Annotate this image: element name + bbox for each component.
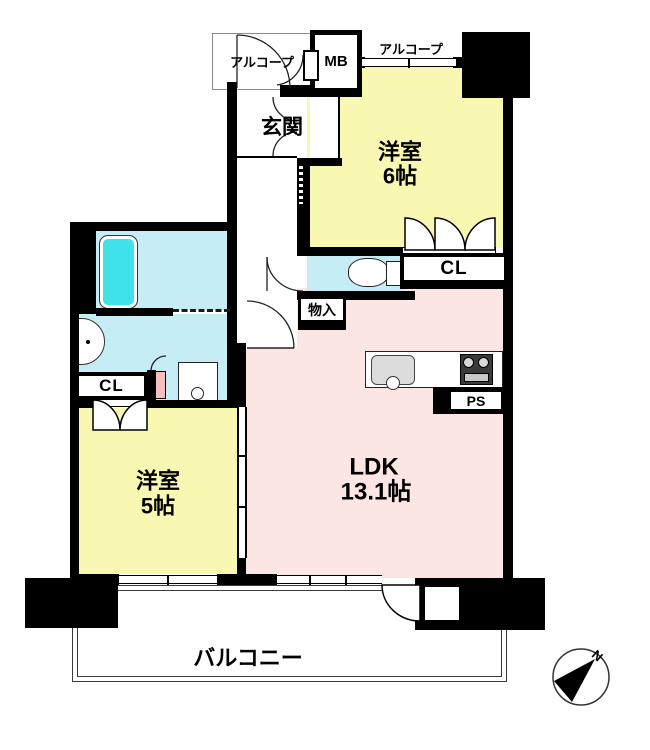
closet5-door-petal — [120, 400, 147, 430]
bedroom6-name-label: 洋室 — [378, 140, 422, 163]
entrance-label: 玄関 — [261, 117, 303, 139]
toilet-door-arc — [267, 257, 303, 291]
ldk-door-arc — [247, 301, 294, 348]
balcony-label: バルコニー — [193, 646, 303, 669]
alcove-right-label: アルコープ — [379, 43, 443, 57]
closet5-door-petal — [93, 400, 120, 430]
compass: N — [544, 640, 618, 714]
closet6-door-petal — [405, 218, 435, 250]
closet6-door-petal — [465, 218, 495, 250]
alcove-left-label: アルコープ — [230, 56, 294, 70]
closet6-door-petal — [435, 218, 465, 250]
bedroom5-name-label: 洋室 — [136, 469, 180, 492]
bedroom5-size-label: 5帖 — [141, 494, 175, 517]
ldk-name-label: LDK — [349, 454, 398, 479]
door-arcs-overlay — [0, 0, 650, 750]
balcony-door-swing — [382, 585, 420, 621]
bedroom6-size-label: 6帖 — [383, 164, 417, 187]
floor-plan: MB CL 物入 CL PS — [0, 0, 650, 750]
ldk-size-label: 13.1帖 — [341, 479, 412, 504]
heater-door-arc — [151, 356, 166, 371]
